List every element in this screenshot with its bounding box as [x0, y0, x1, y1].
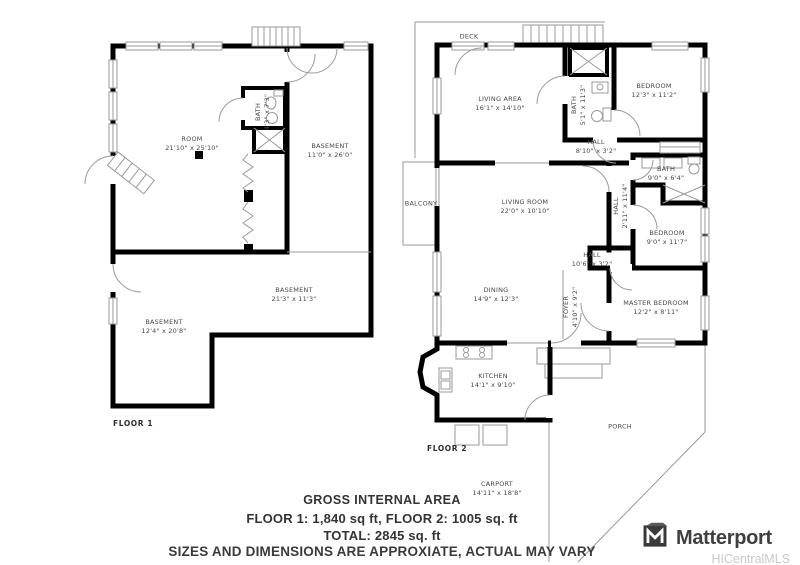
room-dims: 8'10" x 3'2": [576, 147, 617, 156]
room-dims: 11'0" x 26'0": [308, 151, 353, 160]
room-label-porch: PORCH: [608, 423, 632, 432]
gross-internal-area-title: GROSS INTERNAL AREA: [0, 493, 764, 507]
room-dims: 4'3" x 7'3": [263, 94, 272, 130]
floor1-wall-stubs: [195, 151, 253, 253]
room-dims: 14'9" x 12'3": [474, 295, 519, 304]
room-name: CARPORT: [472, 480, 521, 489]
room-label-bedroom-mid: BEDROOM 9'0" x 11'7": [647, 229, 688, 247]
room-label-foyer: FOYER 4'10" x 9'2": [562, 287, 580, 328]
matterport-logo-icon: [640, 521, 670, 555]
room-label-master-bedroom: MASTER BEDROOM 12'2" x 8'11": [623, 299, 689, 317]
room-label-bath-mid: BATH 9'0" x 6'4": [648, 165, 684, 183]
room-name: BEDROOM: [632, 82, 677, 91]
room-name: BASEMENT: [308, 142, 353, 151]
room-name: DECK: [460, 33, 479, 42]
room-name: BATH: [254, 94, 263, 130]
room-dims: 9'0" x 6'4": [648, 174, 684, 183]
room-dims: 14'1" x 9'10": [471, 381, 516, 390]
room-name: LIVING AREA: [475, 95, 524, 104]
floor2-caption: FLOOR 2: [427, 444, 467, 453]
room-name: HALL: [576, 138, 617, 147]
room-dims: 10'6" x 3'2": [572, 260, 613, 269]
room-label-room: ROOM 21'10" x 25'10": [165, 135, 219, 153]
matterport-wordmark: Matterport: [676, 527, 772, 550]
room-label-bath-top: BATH 5'1" x 11'3": [570, 85, 588, 126]
room-name: HALL: [612, 184, 621, 229]
room-name: KITCHEN: [471, 372, 516, 381]
room-dims: 21'3" x 11'3": [272, 295, 317, 304]
room-name: BATH: [648, 165, 684, 174]
room-name: DINING: [474, 286, 519, 295]
room-name: FOYER: [562, 287, 571, 328]
room-dims: 9'0" x 11'7": [647, 238, 688, 247]
room-label-kitchen: KITCHEN 14'1" x 9'10": [471, 372, 516, 390]
room-dims: 12'3" x 11'2": [632, 91, 677, 100]
room-label-deck: DECK: [460, 33, 479, 42]
room-name: HALL: [572, 251, 613, 260]
room-dims: 16'1" x 14'10": [475, 104, 524, 113]
room-label-basement-right: BASEMENT 11'0" x 26'0": [308, 142, 353, 160]
room-dims: 12'4" x 20'8": [142, 327, 187, 336]
floor1-caption: FLOOR 1: [113, 419, 153, 428]
room-dims: 2'11" x 11'4": [621, 184, 630, 229]
room-label-hall-lower: HALL 10'6" x 3'2": [572, 251, 613, 269]
floor2-thin-outline: [403, 22, 705, 562]
room-dims: 22'0" x 10'10": [500, 207, 549, 216]
room-name: PORCH: [608, 423, 632, 432]
room-name: BASEMENT: [142, 318, 187, 327]
room-label-bath-f1: BATH 4'3" x 7'3": [254, 94, 272, 130]
room-dims: 21'10" x 25'10": [165, 144, 219, 153]
room-name: BALCONY: [405, 200, 437, 209]
room-label-bedroom-top: BEDROOM 12'3" x 11'2": [632, 82, 677, 100]
room-name: LIVING ROOM: [500, 198, 549, 207]
room-label-basement-left: BASEMENT 12'4" x 20'8": [142, 318, 187, 336]
room-name: MASTER BEDROOM: [623, 299, 689, 308]
room-name: BASEMENT: [272, 286, 317, 295]
room-label-living-room: LIVING ROOM 22'0" x 10'10": [500, 198, 549, 216]
room-label-balcony: BALCONY: [405, 200, 437, 209]
room-name: ROOM: [165, 135, 219, 144]
room-label-basement-mid: BASEMENT 21'3" x 11'3": [272, 286, 317, 304]
floorplan-drawing: [0, 0, 800, 565]
room-dims: 4'10" x 9'2": [571, 287, 580, 328]
room-label-hall-top: HALL 8'10" x 3'2": [576, 138, 617, 156]
room-label-living-area: LIVING AREA 16'1" x 14'10": [475, 95, 524, 113]
room-label-hall-mid: HALL 2'11" x 11'4": [612, 184, 630, 229]
room-dims: 12'2" x 8'11": [623, 308, 689, 317]
room-dims: 5'1" x 11'3": [579, 85, 588, 126]
room-label-dining: DINING 14'9" x 12'3": [474, 286, 519, 304]
room-name: BEDROOM: [647, 229, 688, 238]
room-name: BATH: [570, 85, 579, 126]
branding-block: Matterport HICentralMLS: [640, 521, 790, 563]
floorplan-page: ROOM 21'10" x 25'10" BATH 4'3" x 7'3" BA…: [0, 0, 800, 565]
